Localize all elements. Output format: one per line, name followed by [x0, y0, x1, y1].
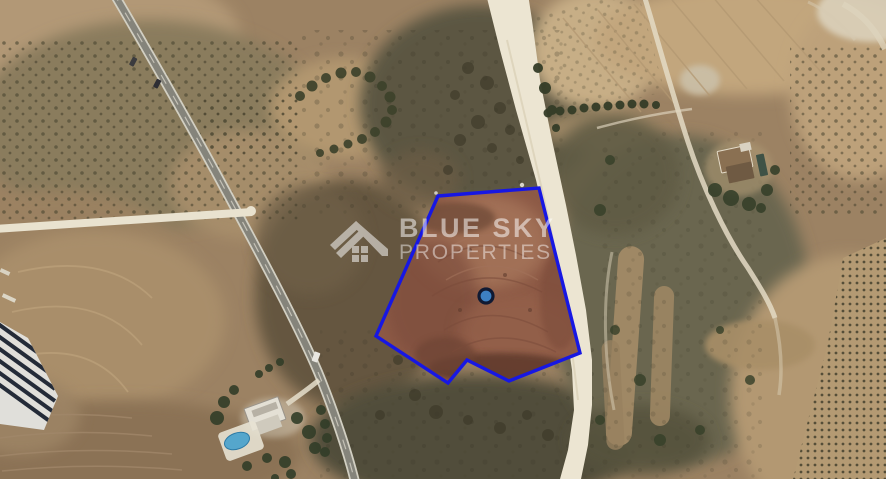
satellite-photo: BLUE SKY PROPERTIES [0, 0, 886, 479]
white-speck [434, 191, 438, 195]
white-speck [520, 183, 524, 187]
aerial-map-image [0, 0, 886, 479]
location-marker [479, 289, 493, 303]
